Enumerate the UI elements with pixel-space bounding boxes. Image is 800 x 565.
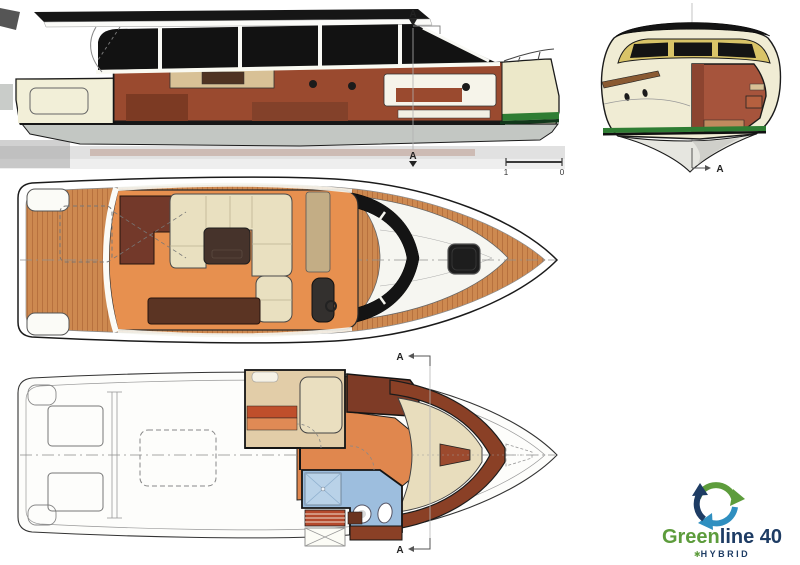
section-label: A [396, 352, 403, 363]
drawing-svg: A A 1 0 [0, 0, 800, 565]
side-elevation-view: A A 1 0 [0, 8, 565, 177]
shower-drain [321, 487, 325, 491]
hull-underbody [22, 124, 558, 146]
section-label: A [409, 151, 416, 162]
brand-tagline: ✱HYBRID [694, 549, 750, 559]
porthole [462, 83, 470, 91]
lower-deck-plan-view: A A [18, 352, 557, 556]
helm-console [306, 192, 330, 272]
scale-right-label: 0 [560, 168, 565, 177]
windshield-pane [630, 43, 668, 59]
porthole [309, 80, 317, 88]
companion-seat [256, 276, 292, 322]
boat-layout-drawing: A A 1 0 [0, 0, 800, 565]
scale-left-label: 1 [504, 168, 509, 177]
arrow-icon [408, 546, 414, 552]
bow-section-view: A [602, 3, 781, 175]
foredeck-hatch [448, 244, 480, 274]
guest-berth [300, 377, 342, 433]
main-deck-plan-view [18, 177, 557, 343]
brand-logo: Greenline 40 ✱HYBRID [662, 483, 782, 559]
transom-seat [27, 189, 69, 211]
cockpit-area [18, 80, 114, 123]
arrow-icon [408, 353, 414, 359]
helm-seat [312, 278, 334, 322]
recycle-arrows-icon [692, 483, 745, 530]
windshield-pane [674, 43, 712, 57]
section-marker-bottom: A [396, 538, 430, 556]
section-label: A [409, 9, 416, 20]
edge-artifact [0, 8, 20, 30]
galley-aft-unit [148, 298, 260, 324]
windshield-pane [718, 43, 756, 59]
porthole [348, 82, 356, 90]
section-marker-top: A [396, 352, 430, 366]
section-label: A [716, 164, 723, 175]
arrow-icon [705, 165, 711, 171]
brand-name: Greenline 40 [662, 526, 782, 548]
section-label: A [396, 545, 403, 556]
side-windows [98, 24, 497, 70]
salon-table [204, 228, 250, 264]
transom-seat [27, 313, 69, 335]
